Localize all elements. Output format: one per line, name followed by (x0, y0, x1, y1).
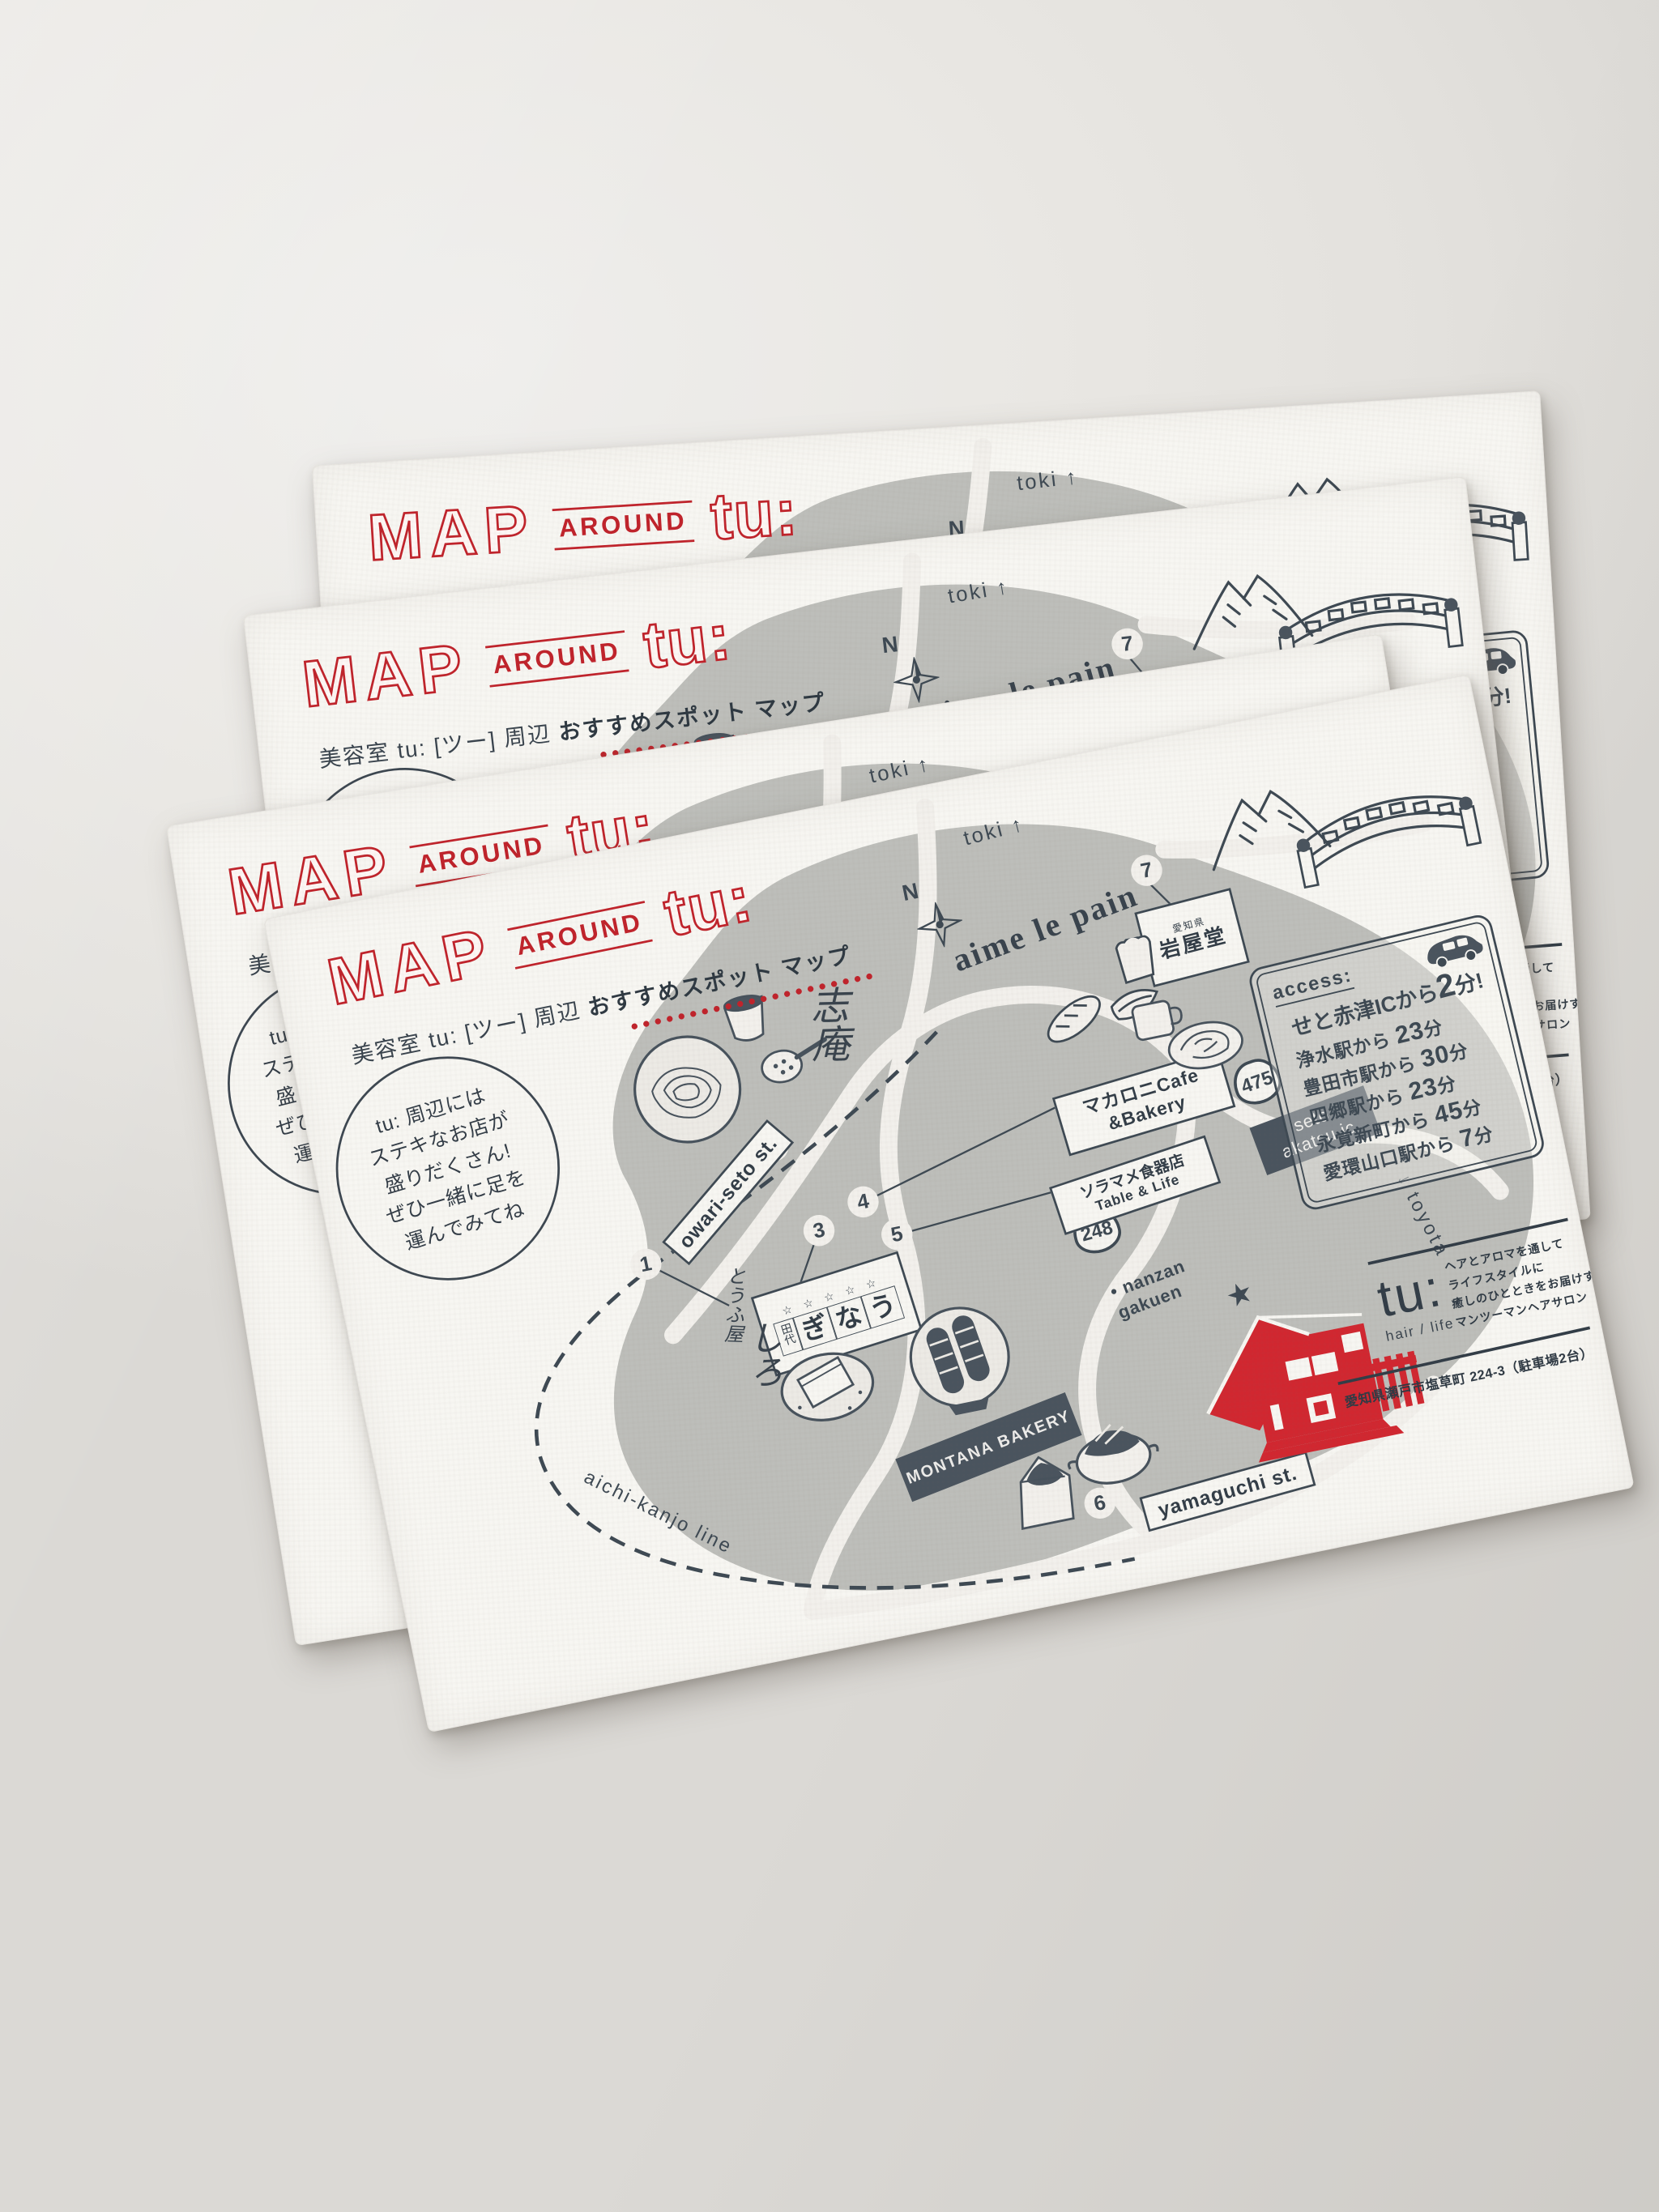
access-row-suffix: 分 (1461, 1097, 1484, 1121)
title-around: AROUND (485, 630, 629, 688)
title-tu-logo: tu: (640, 603, 735, 678)
title-tu-logo: tu: (709, 479, 800, 550)
title-map: MAP (300, 633, 473, 717)
salon-logo: tu: hair / life (1373, 1260, 1456, 1345)
soba-shian-label: 志庵 (806, 985, 847, 1063)
title-tu-logo: tu: (659, 865, 757, 946)
access-highlight-suffix: 分! (1452, 969, 1486, 999)
title-around: AROUND (552, 501, 694, 551)
access-row-suffix: 分 (1447, 1041, 1470, 1065)
photo-scene: MAP AROUND tu: 美容室 tu: [ツー] 周辺 おすすめスポット … (0, 0, 1659, 2212)
unagi-bowl-icon (893, 1294, 1028, 1426)
salon-logo-text: tu: (1373, 1260, 1452, 1325)
access-row-suffix: 分 (1422, 1016, 1445, 1041)
compass-n-label: N (881, 632, 899, 658)
access-row-suffix: 分 (1472, 1123, 1495, 1148)
title-map: MAP (366, 495, 537, 570)
access-row-suffix: 分 (1435, 1073, 1459, 1097)
